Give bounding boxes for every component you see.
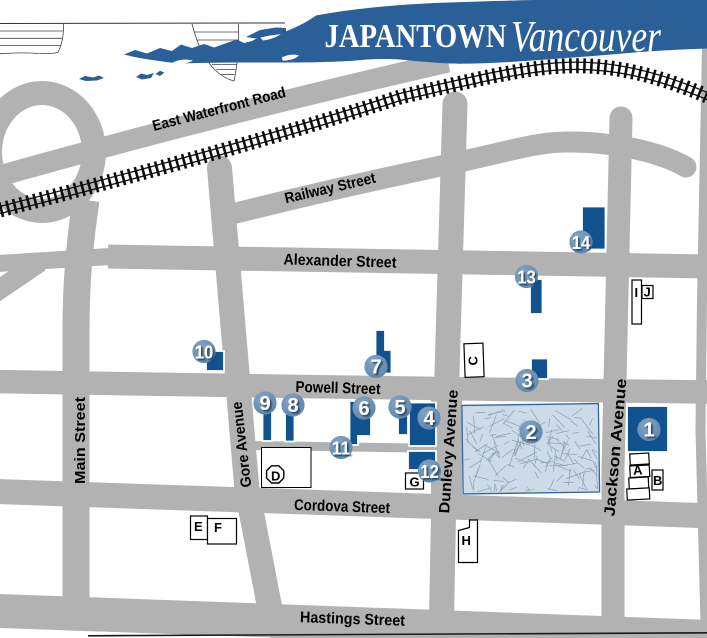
svg-text:12: 12 [420, 462, 439, 482]
svg-text:Main Street: Main Street [72, 397, 89, 484]
svg-text:Alexander Street: Alexander Street [283, 251, 396, 271]
svg-text:13: 13 [517, 268, 536, 288]
svg-text:G: G [410, 475, 420, 490]
svg-text:JAPANTOWN: JAPANTOWN [325, 18, 507, 55]
svg-text:6: 6 [358, 398, 369, 420]
svg-text:4: 4 [423, 408, 435, 430]
svg-text:10: 10 [195, 343, 214, 363]
svg-text:Cordova Street: Cordova Street [294, 497, 391, 517]
svg-text:B: B [653, 473, 662, 488]
svg-text:3: 3 [521, 371, 532, 393]
svg-text:E: E [194, 519, 203, 534]
svg-text:5: 5 [394, 397, 405, 419]
svg-text:11: 11 [332, 439, 351, 459]
svg-text:1: 1 [643, 420, 654, 442]
svg-text:14: 14 [572, 233, 591, 253]
svg-text:F: F [214, 520, 222, 535]
svg-text:9: 9 [259, 393, 270, 415]
svg-text:A: A [633, 462, 644, 478]
svg-text:2: 2 [525, 422, 536, 444]
svg-text:J: J [644, 285, 651, 300]
svg-text:Vancouver: Vancouver [511, 12, 662, 61]
svg-text:7: 7 [370, 357, 381, 379]
svg-text:I: I [635, 285, 639, 300]
svg-text:Powell Street: Powell Street [295, 379, 380, 398]
svg-text:D: D [271, 469, 280, 484]
svg-text:C: C [466, 356, 481, 366]
svg-text:8: 8 [287, 395, 298, 417]
svg-text:H: H [462, 533, 471, 548]
